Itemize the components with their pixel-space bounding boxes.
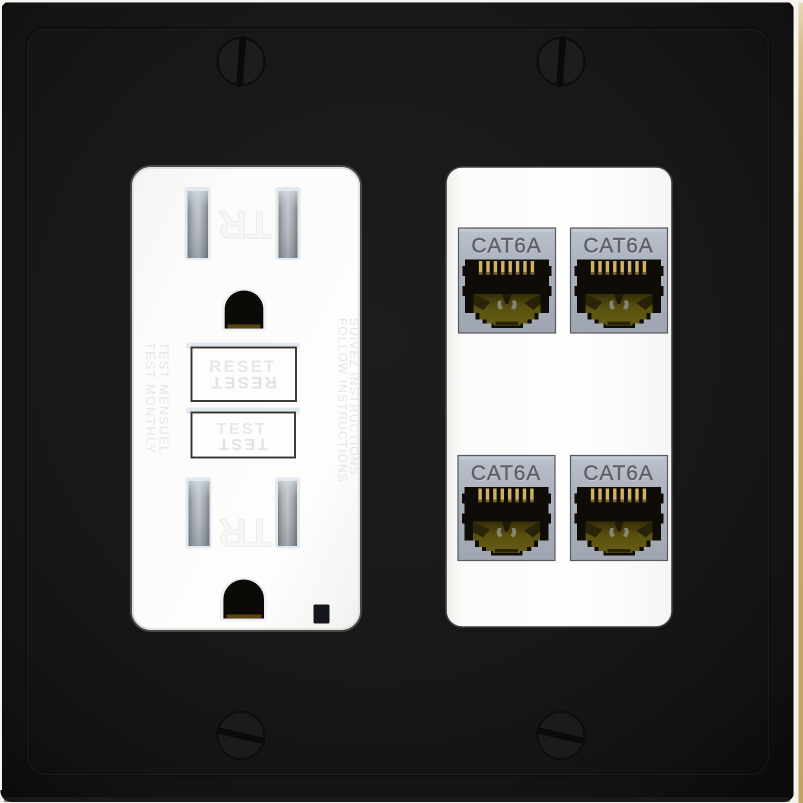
svg-text:TEST MONTHLY: TEST MONTHLY	[143, 342, 157, 454]
svg-text:RESET: RESET	[209, 373, 277, 391]
svg-text:TEST: TEST	[217, 435, 268, 452]
svg-text:TR: TR	[218, 202, 271, 246]
svg-text:TR: TR	[218, 510, 271, 554]
svg-text:TEST MENSUEL: TEST MENSUEL	[157, 342, 171, 454]
svg-text:SUIVEZ INSTRUCTIONS: SUIVEZ INSTRUCTIONS	[347, 318, 361, 476]
